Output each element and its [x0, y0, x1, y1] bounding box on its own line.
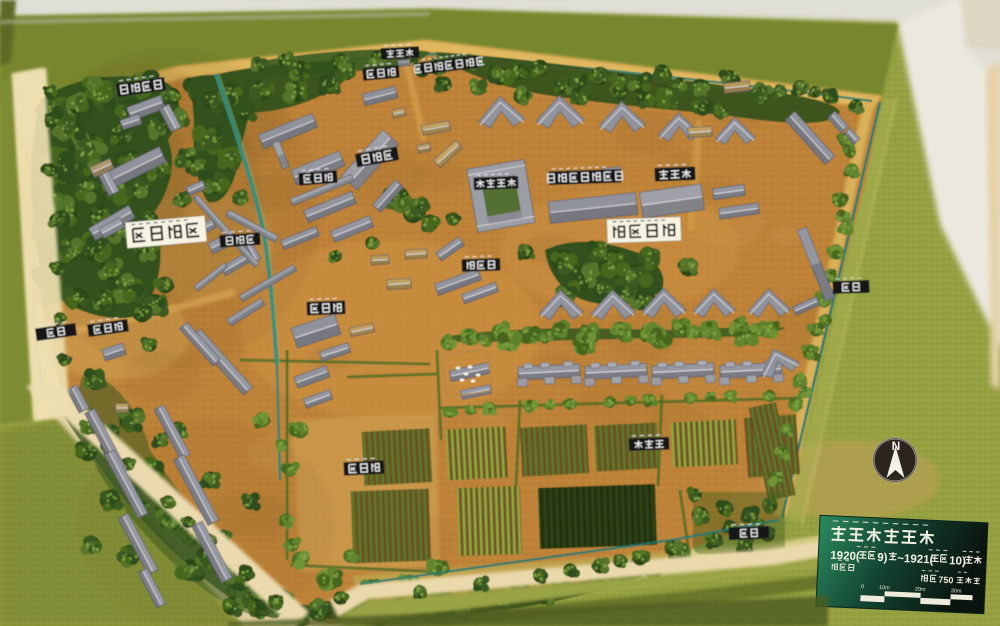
- svg-text:10m: 10m: [879, 585, 890, 591]
- svg-text:0: 0: [861, 584, 864, 590]
- svg-text:10): 10): [949, 555, 966, 568]
- svg-text:20m: 20m: [915, 587, 926, 593]
- svg-text:30m: 30m: [951, 588, 962, 594]
- svg-text:9): 9): [877, 552, 888, 564]
- svg-text:~1921(: ~1921(: [897, 553, 934, 567]
- svg-text:750: 750: [938, 575, 953, 586]
- svg-text:1920(: 1920(: [830, 550, 860, 563]
